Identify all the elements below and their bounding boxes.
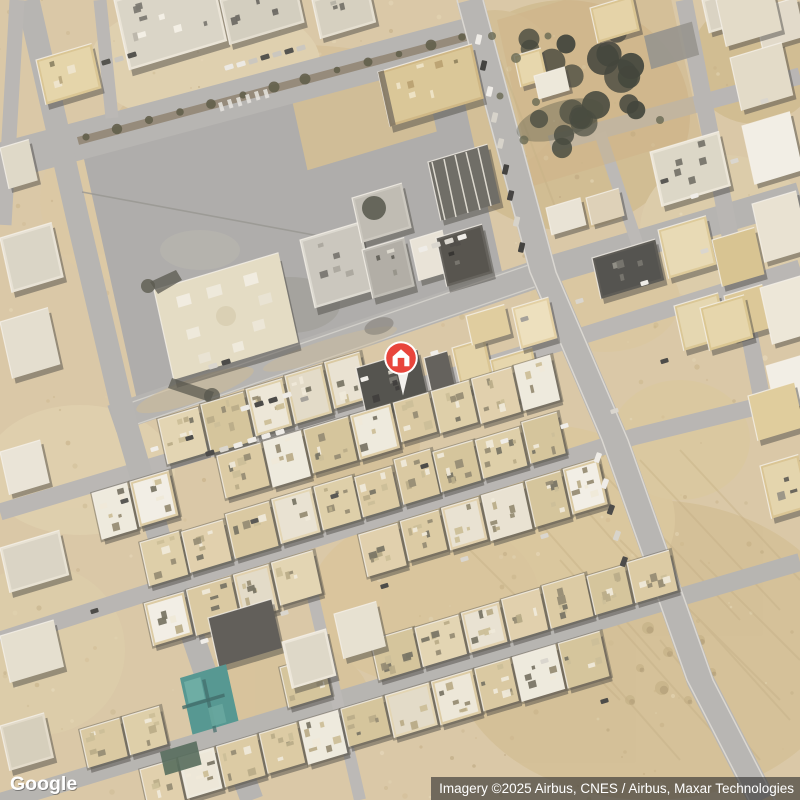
svg-text:Imagery ©2025 Airbus, CNES / A: Imagery ©2025 Airbus, CNES / Airbus, Max…	[439, 781, 794, 796]
svg-text:Google: Google	[10, 773, 77, 795]
